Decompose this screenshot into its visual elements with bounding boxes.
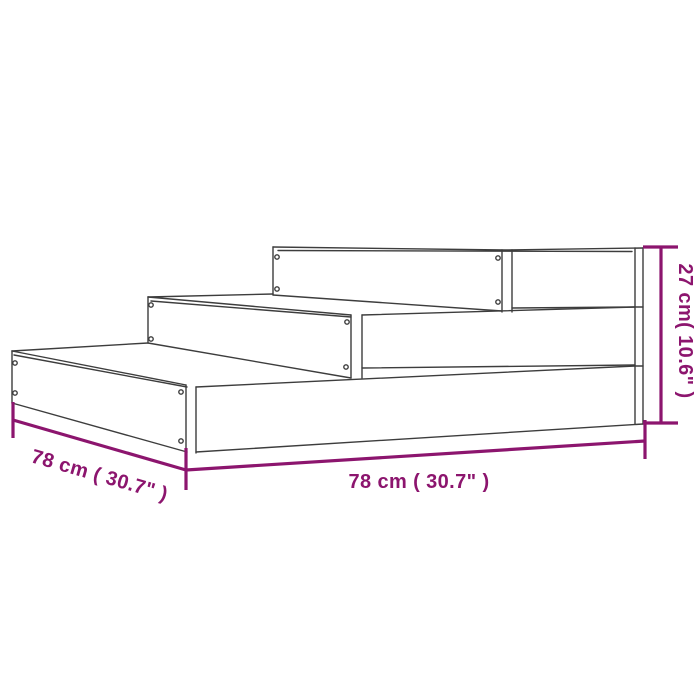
screw-icon	[179, 439, 183, 443]
bottom-tier-outline	[12, 343, 643, 453]
dimension-height: 27 cm( 10.6" )	[643, 247, 696, 423]
edge-line	[148, 343, 351, 378]
dimension-width: 78 cm ( 30.7" )	[186, 420, 645, 493]
dimension-depth: 78 cm ( 30.7" )	[13, 402, 186, 506]
screw-icon	[496, 300, 500, 304]
diagram-canvas: 78 cm ( 30.7" ) 78 cm ( 30.7" ) 27 cm( 1…	[0, 0, 700, 700]
edge-line	[148, 297, 351, 315]
edge-line	[12, 351, 186, 385]
screw-icon	[275, 255, 279, 259]
planter-drawing	[12, 247, 643, 453]
screw-icon	[496, 256, 500, 260]
depth-dimension-label: 78 cm ( 30.7" )	[29, 446, 171, 506]
screw-icon	[275, 287, 279, 291]
edge-line	[151, 301, 351, 317]
edge-line	[273, 247, 643, 250]
edge-line	[196, 366, 635, 387]
edge-line	[273, 295, 502, 311]
edge-line	[362, 307, 635, 315]
edge-line	[196, 424, 643, 452]
screw-icon	[344, 365, 348, 369]
edge-line	[12, 343, 148, 351]
edge-line	[14, 355, 187, 387]
edge-line	[148, 294, 273, 297]
edge-line	[278, 251, 632, 252]
middle-tier-outline	[148, 294, 635, 378]
screw-icon	[13, 361, 17, 365]
right-end-outline	[635, 248, 643, 424]
screw-dots	[13, 255, 500, 443]
screw-icon	[149, 303, 153, 307]
dimension-line	[186, 441, 645, 470]
screw-icon	[149, 337, 153, 341]
width-dimension-label: 78 cm ( 30.7" )	[348, 471, 489, 493]
planter-dimension-diagram: 78 cm ( 30.7" ) 78 cm ( 30.7" ) 27 cm( 1…	[0, 0, 700, 700]
screw-icon	[13, 391, 17, 395]
top-tier-outline	[273, 247, 643, 312]
height-dimension-label: 27 cm( 10.6" )	[674, 263, 696, 398]
screw-icon	[345, 320, 349, 324]
screw-icon	[179, 390, 183, 394]
